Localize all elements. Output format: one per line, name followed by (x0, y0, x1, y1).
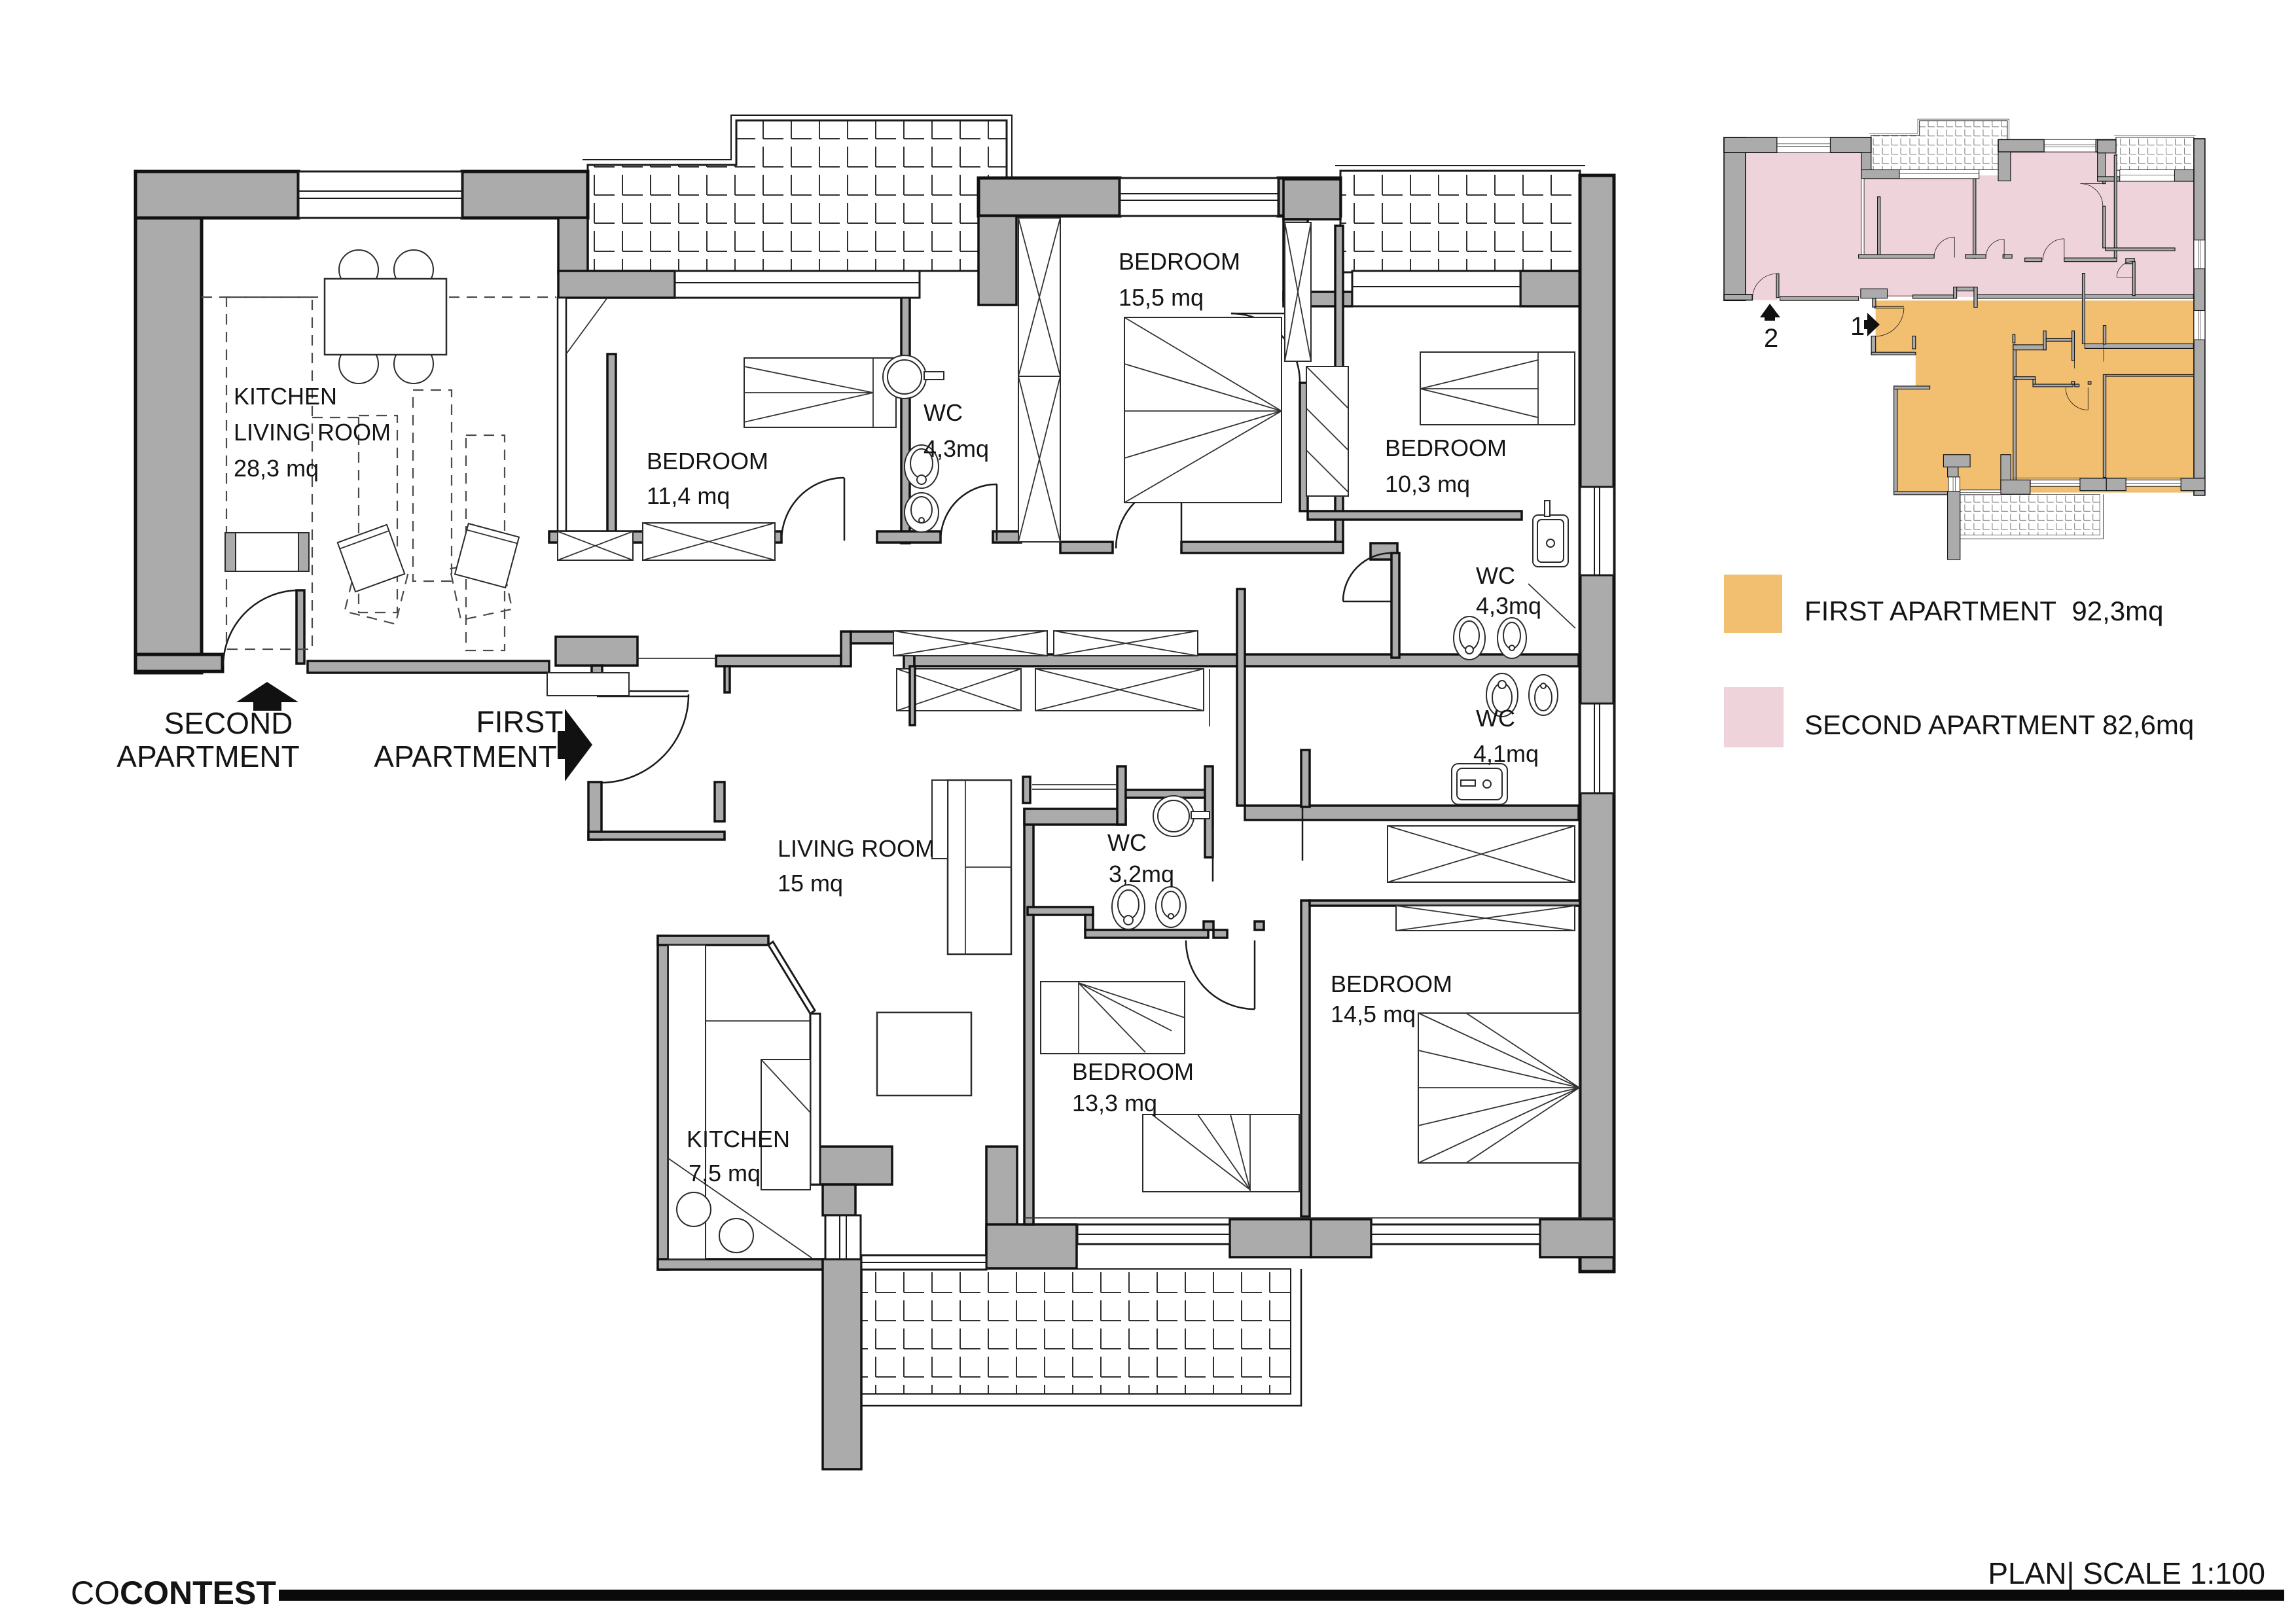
svg-text:COCONTEST: COCONTEST (71, 1575, 276, 1611)
svg-text:1: 1 (1850, 312, 1865, 341)
svg-text:SECOND APARTMENT 82,6mq: SECOND APARTMENT 82,6mq (1804, 709, 2194, 740)
svg-text:PLAN| SCALE 1:100: PLAN| SCALE 1:100 (1988, 1556, 2265, 1590)
svg-text:2: 2 (1764, 324, 1778, 353)
svg-text:FIRST APARTMENT 92,3mq: FIRST APARTMENT 92,3mq (1804, 596, 2163, 626)
